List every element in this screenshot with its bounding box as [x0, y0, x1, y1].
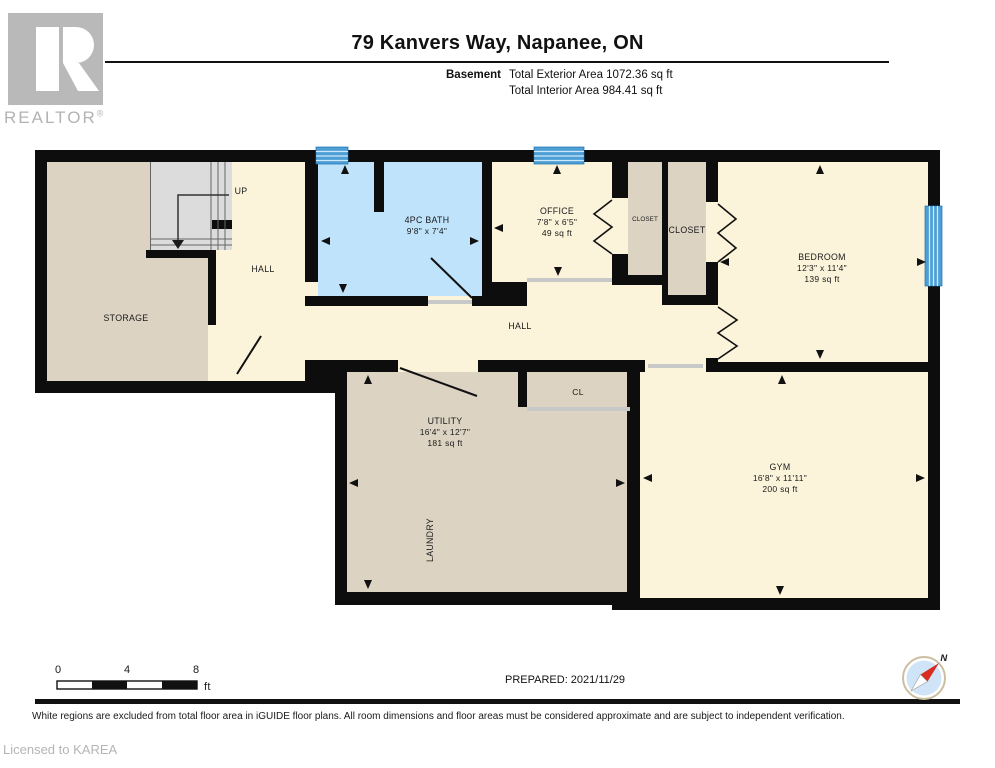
room-utility: [347, 372, 627, 592]
label-office-area: 49 sq ft: [542, 228, 573, 238]
scale-bar: 0 4 8 ft: [55, 664, 211, 693]
compass: N: [903, 653, 948, 699]
footer-divider: [35, 699, 960, 704]
label-gym-dims: 16'8" x 11'11": [753, 473, 807, 483]
label-gym: GYM: [770, 462, 791, 472]
floor-plan-canvas: STORAGE HALL UP 4PC BATH 9'8" x 7'4" OFF…: [0, 0, 995, 768]
compass-north-label: N: [940, 653, 948, 664]
scale-tick-8: 8: [193, 664, 199, 676]
label-closet-large: CLOSET: [669, 225, 706, 235]
label-storage: STORAGE: [104, 313, 149, 323]
label-gym-area: 200 sq ft: [762, 484, 798, 494]
label-hall-main: HALL: [508, 321, 531, 331]
label-utility-dims: 16'4" x 12'7": [420, 427, 471, 437]
storage-door-opening: [208, 325, 216, 381]
room-bath: [318, 162, 482, 296]
scale-tick-4: 4: [124, 664, 130, 676]
label-bedroom-area: 139 sq ft: [804, 274, 840, 284]
label-office: OFFICE: [540, 206, 574, 216]
label-closet-small: CLOSET: [632, 216, 658, 223]
label-utility-area: 181 sq ft: [427, 438, 463, 448]
label-hall-upper: HALL: [251, 264, 274, 274]
label-bedroom-dims: 12'3" x 11'4": [797, 263, 847, 273]
label-bedroom: BEDROOM: [798, 252, 846, 262]
label-bath: 4PC BATH: [405, 215, 450, 225]
label-stairs-up: UP: [235, 186, 248, 196]
label-closet-cl: CL: [572, 387, 583, 397]
label-laundry: LAUNDRY: [425, 518, 435, 562]
scale-tick-0: 0: [55, 664, 61, 676]
label-bath-dims: 9'8" x 7'4": [407, 226, 447, 236]
realtor-logo: [8, 13, 103, 105]
room-bedroom: [718, 162, 928, 362]
label-office-dims: 7'8" x 6'5": [537, 217, 577, 227]
stairwell: [150, 162, 232, 250]
scale-unit: ft: [204, 681, 211, 693]
label-utility: UTILITY: [428, 416, 463, 426]
